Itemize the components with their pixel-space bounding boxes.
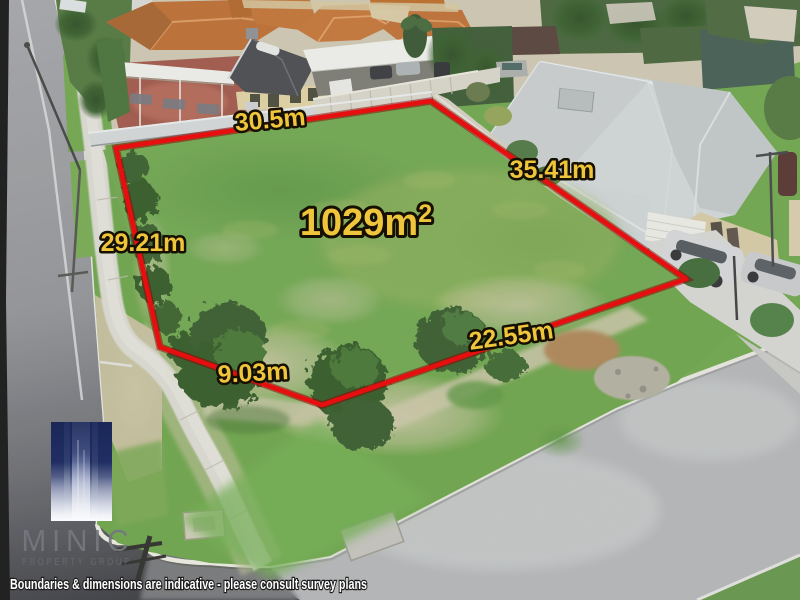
svg-text:9.03m: 9.03m [217, 357, 289, 389]
svg-text:35.41m: 35.41m [510, 156, 595, 184]
svg-text:29.21m: 29.21m [101, 229, 186, 257]
svg-text:Boundaries & dimensions are in: Boundaries & dimensions are indicative -… [10, 577, 367, 593]
svg-text:MINIC: MINIC [22, 523, 135, 558]
svg-text:1029m2: 1029m2 [300, 200, 432, 244]
svg-text:PROPERTY GROUP: PROPERTY GROUP [22, 557, 132, 568]
